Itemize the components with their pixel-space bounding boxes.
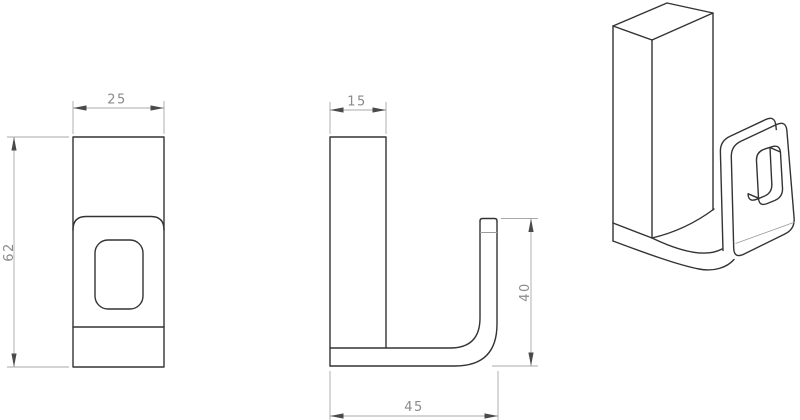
iso-block-bottom-right-edge xyxy=(652,209,714,238)
dim-arrow-left xyxy=(330,107,344,112)
dim-arrow-right xyxy=(485,413,499,418)
side-hook-inner-contour xyxy=(330,221,480,348)
side-view-dimensions: 15 40 45 xyxy=(330,95,538,420)
iso-block-bottom-left-edge xyxy=(613,223,652,238)
front-height-value: 62 xyxy=(2,242,17,262)
side-top-width-value: 15 xyxy=(347,95,367,110)
side-plate-outline xyxy=(330,137,386,366)
iso-tip-plate-front-face xyxy=(731,123,794,255)
dim-arrow-right xyxy=(373,107,387,112)
front-outline xyxy=(73,137,164,367)
iso-sheet-outer-curve xyxy=(613,241,734,270)
side-depth-value: 45 xyxy=(404,400,424,415)
front-hook-top-edge xyxy=(73,217,164,231)
dim-arrow-up xyxy=(528,219,533,233)
front-view xyxy=(73,137,164,367)
dim-arrow-left xyxy=(330,413,344,418)
dim-arrow-left xyxy=(73,105,87,110)
dim-arrow-down xyxy=(11,354,16,368)
iso-sheet-inner-curve xyxy=(652,238,722,253)
iso-slot-front-outline xyxy=(756,146,782,204)
isometric-view xyxy=(613,3,795,270)
front-view-dimensions: 25 62 xyxy=(2,93,164,368)
dim-arrow-right xyxy=(151,105,165,110)
dim-arrow-down xyxy=(528,353,533,367)
hook-technical-drawing: 25 62 15 40 45 xyxy=(0,0,800,420)
side-hook-tip-top-edge xyxy=(480,219,497,222)
side-view xyxy=(330,137,497,366)
technical-drawing-page: 25 62 15 40 45 xyxy=(0,0,800,420)
front-width-value: 25 xyxy=(107,93,127,108)
iso-slot-inner-wall xyxy=(748,148,772,201)
side-hook-outer-contour xyxy=(330,221,497,366)
dim-arrow-up xyxy=(11,137,16,151)
front-slot xyxy=(95,240,143,309)
iso-slot-wall-edge-bottom xyxy=(748,194,758,198)
side-hook-height-value: 40 xyxy=(518,282,533,302)
iso-block-top-face xyxy=(613,3,713,40)
